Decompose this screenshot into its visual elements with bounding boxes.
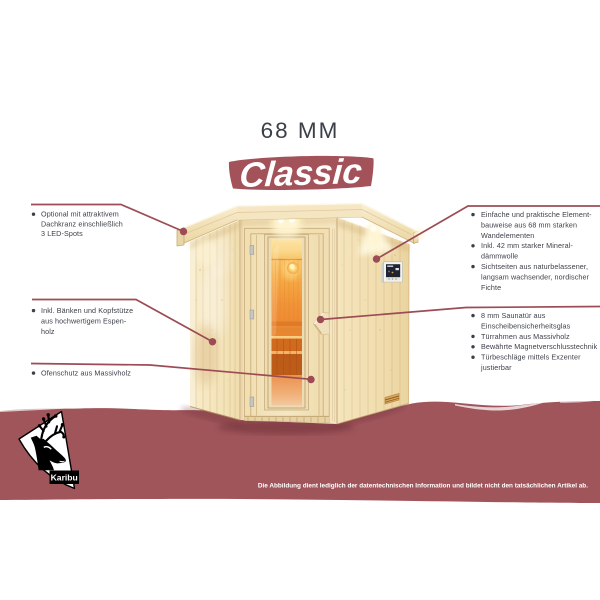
svg-text:Inkl. 42 mm starker Mineral-: Inkl. 42 mm starker Mineral-	[481, 241, 573, 250]
svg-text:Wandelementen: Wandelementen	[481, 231, 534, 240]
svg-text:Die Abbildung dient lediglich: Die Abbildung dient lediglich der datent…	[258, 483, 588, 490]
svg-text:langsam wachsender, nordischer: langsam wachsender, nordischer	[481, 272, 590, 281]
svg-text:holz: holz	[41, 327, 55, 336]
svg-text:aus hochwertigem Espen-: aus hochwertigem Espen-	[41, 317, 127, 326]
svg-text:Sichtseiten aus naturbelassene: Sichtseiten aus naturbelassener,	[481, 262, 588, 271]
svg-text:Karibu: Karibu	[51, 473, 78, 483]
svg-text:68 MM: 68 MM	[261, 118, 340, 143]
svg-text:bauweise aus 68 mm starken: bauweise aus 68 mm starken	[481, 220, 577, 229]
svg-text:Einfache und praktische Elemen: Einfache und praktische Element-	[481, 210, 592, 219]
svg-text:Fichte: Fichte	[481, 283, 501, 292]
svg-text:Dachkranz einschließlich: Dachkranz einschließlich	[41, 219, 123, 228]
svg-text:Optional mit attraktivem: Optional mit attraktivem	[41, 210, 119, 219]
svg-text:Einscheibensicherheitsglas: Einscheibensicherheitsglas	[481, 321, 571, 330]
svg-text:Classic: Classic	[238, 152, 363, 195]
svg-text:3 LED-Spots: 3 LED-Spots	[41, 229, 83, 238]
svg-text:Ofenschutz aus Massivholz: Ofenschutz aus Massivholz	[41, 369, 131, 378]
svg-text:Türrahmen aus Massivholz: Türrahmen aus Massivholz	[481, 332, 570, 341]
svg-text:justierbar: justierbar	[480, 363, 512, 372]
svg-text:dämmwolle: dämmwolle	[481, 252, 518, 261]
svg-text:Bewährte Magnetverschlusstechn: Bewährte Magnetverschlusstechnik	[481, 342, 598, 351]
svg-text:Türbeschläge mittels Exzenter: Türbeschläge mittels Exzenter	[481, 353, 581, 362]
svg-text:Inkl. Bänken und Kopfstütze: Inkl. Bänken und Kopfstütze	[41, 306, 133, 315]
svg-text:8 mm Saunatür aus: 8 mm Saunatür aus	[481, 311, 546, 320]
